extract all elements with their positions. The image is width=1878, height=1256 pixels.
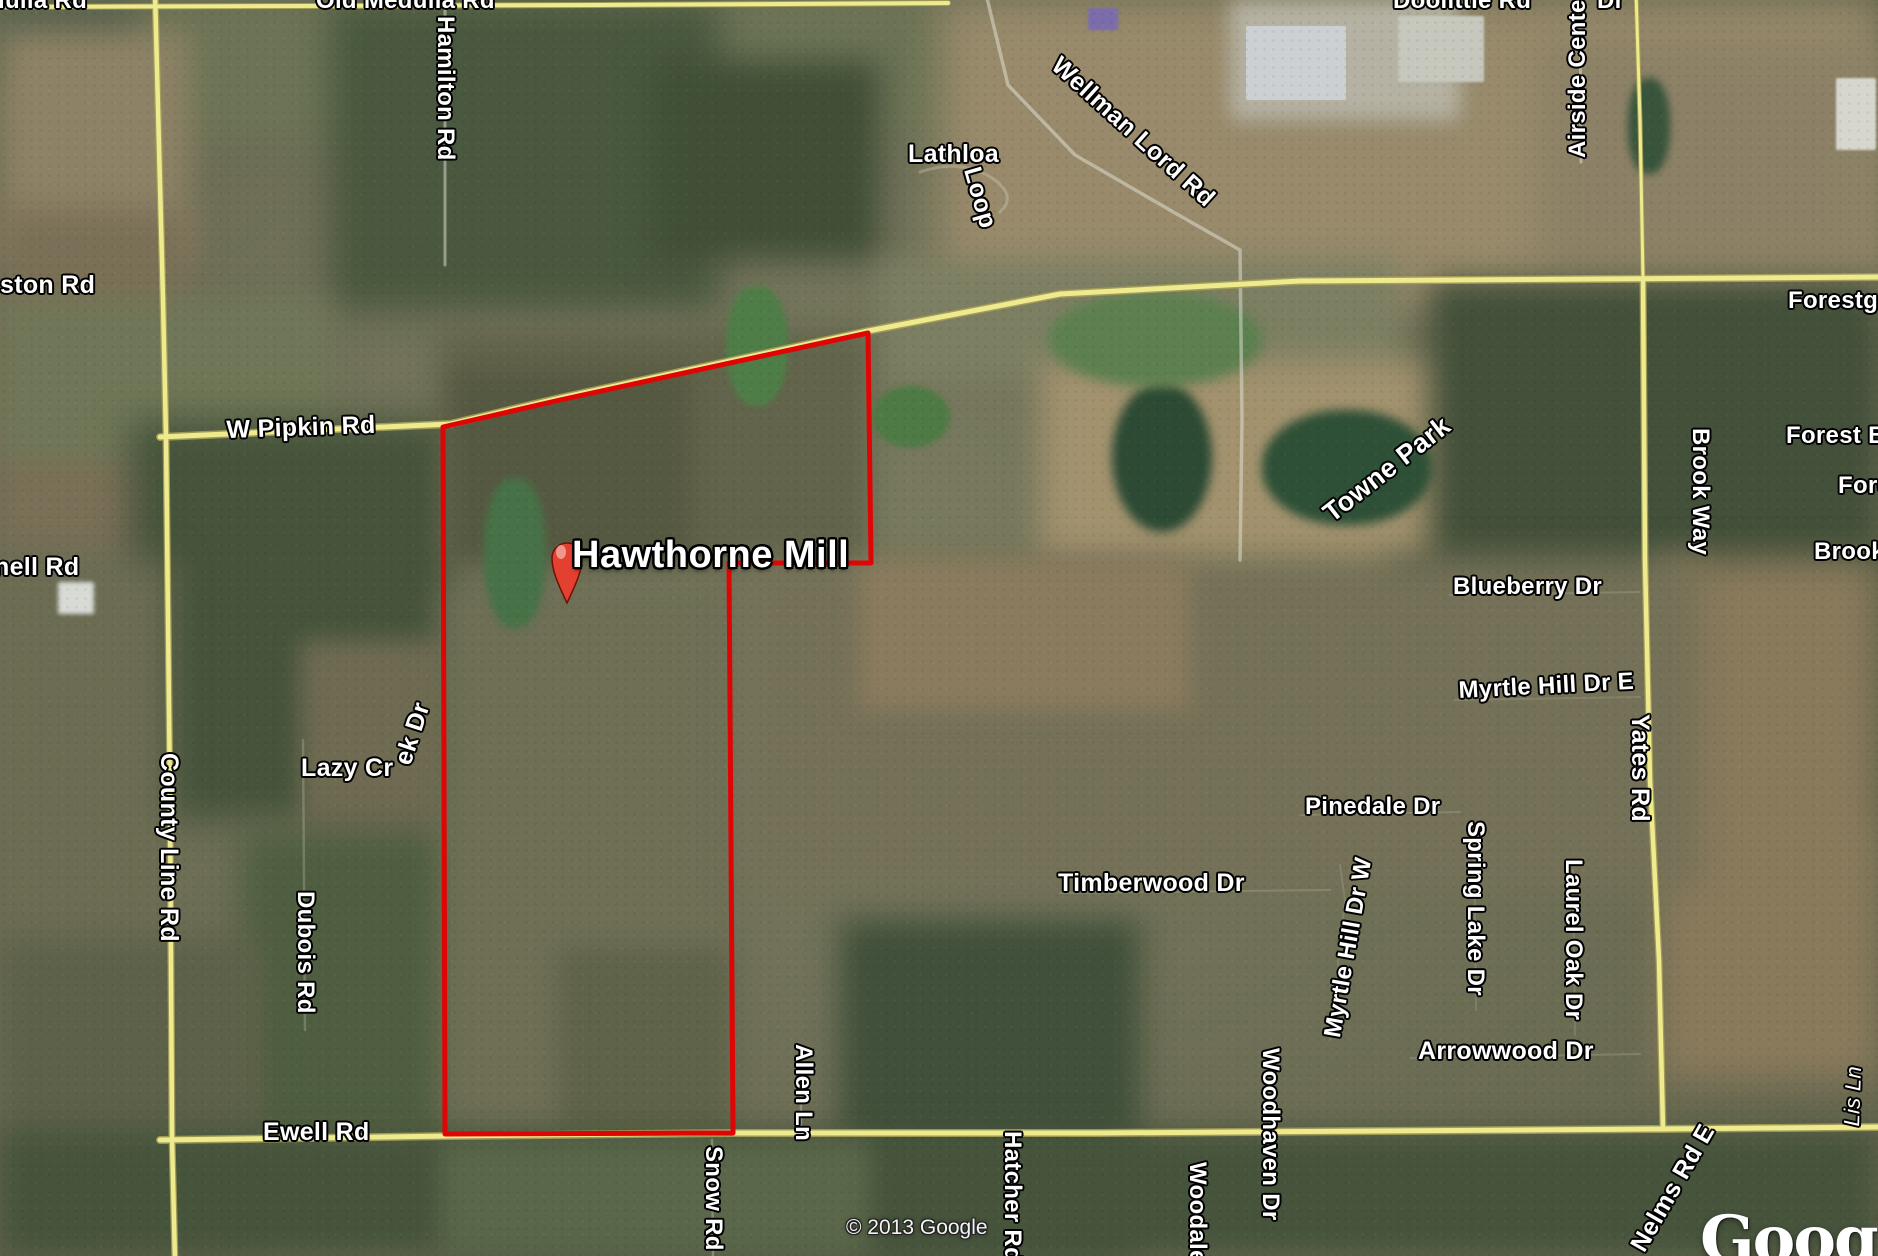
road-label-snow-rd: Snow Rd (701, 1146, 726, 1251)
attribution-text: © 2013 Google (846, 1216, 988, 1240)
road-w-pipkin (160, 277, 1878, 437)
road-label-ewell-rd: Ewell Rd (263, 1119, 370, 1146)
placemark-label[interactable]: Hawthorne Mill (572, 536, 849, 576)
property-boundary[interactable] (443, 333, 871, 1134)
road-label-lazy-cr: Lazy Cr (301, 755, 393, 782)
road-label-woodale-dr: Woodale Dr (1185, 1162, 1210, 1256)
road-label-lathloa: Lathloa (908, 141, 999, 168)
road-label-forestg: Forestg (1788, 288, 1878, 313)
road-label-blueberry-dr: Blueberry Dr (1453, 574, 1602, 599)
satellite-map-canvas[interactable]: dulla RdOld Medulla RdHamilton RdDoolitt… (0, 0, 1878, 1256)
google-logo-watermark: Google (1700, 1202, 1878, 1256)
road-label-nell-rd: nell Rd (0, 554, 79, 581)
road-label-lis-ln: Lis Ln (1840, 1066, 1865, 1127)
road-label-old-medulla-rd: Old Medulla Rd (316, 0, 495, 13)
major-roads-casing (0, 0, 1878, 1256)
road-label-county-line-rd: County Line Rd (156, 753, 183, 942)
road-wellman-lord (986, 0, 1242, 560)
road-label-medulla-fragment: dulla Rd (0, 0, 87, 13)
major-roads-layer (0, 0, 1878, 1256)
road-label-dr-fragment: Dr (1597, 0, 1624, 13)
road-label-forest-b: Forest B (1786, 423, 1878, 448)
road-label-fore-fragment: Fore (1838, 473, 1878, 498)
road-label-w-pipkin-rd: W Pipkin Rd (226, 412, 376, 444)
road-label-allen-ln: Allen Ln (791, 1044, 816, 1141)
road-label-ston-rd: ston Rd (0, 272, 95, 299)
road-label-brook-way: Brook Way (1688, 428, 1713, 555)
road-label-timberwood-dr: Timberwood Dr (1058, 870, 1245, 897)
road-label-yates-rd: Yates Rd (1627, 714, 1654, 822)
road-label-hamilton-rd: Hamilton Rd (433, 16, 458, 161)
road-label-spring-lake-dr: Spring Lake Dr (1463, 821, 1488, 996)
road-label-hatcher-rd: Hatcher Rd (1000, 1131, 1025, 1256)
road-label-airside-center-dr: Airside Cente (1565, 0, 1590, 158)
road-label-woodhaven-dr: Woodhaven Dr (1258, 1048, 1283, 1221)
road-label-laurel-oak-dr: Laurel Oak Dr (1561, 859, 1586, 1020)
road-label-pinedale-dr: Pinedale Dr (1305, 794, 1440, 819)
road-label-doolittle-rd: Doolittle Rd (1393, 0, 1531, 13)
road-label-arrowwood-dr: Arrowwood Dr (1418, 1038, 1594, 1065)
map-overlay-graphics (0, 0, 1878, 1256)
road-label-dubois-rd: Dubois Rd (293, 891, 318, 1014)
road-label-brook-fragment: Brook (1814, 539, 1878, 564)
